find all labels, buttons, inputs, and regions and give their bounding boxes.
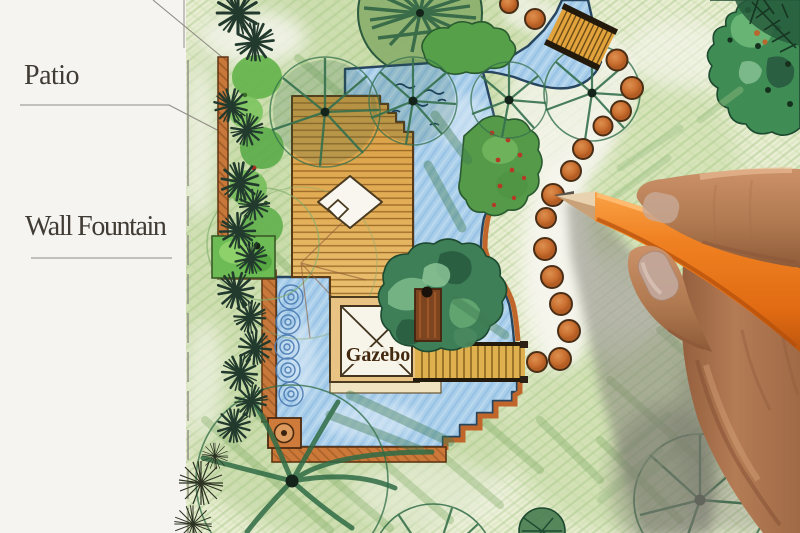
svg-text:Gazebo: Gazebo [346, 344, 410, 366]
svg-text:Patio: Patio [24, 60, 79, 91]
svg-text:Wall Fountain: Wall Fountain [25, 211, 167, 242]
